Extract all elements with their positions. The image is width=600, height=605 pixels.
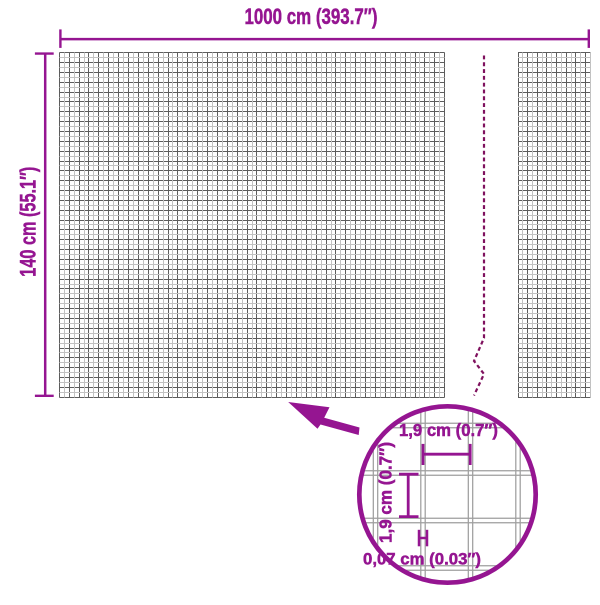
svg-text:1000 cm (393.7″): 1000 cm (393.7″) bbox=[245, 4, 378, 29]
svg-text:1,9 cm (0.7″): 1,9 cm (0.7″) bbox=[376, 442, 396, 543]
svg-text:140 cm (55.1″): 140 cm (55.1″) bbox=[16, 167, 41, 277]
svg-text:1,9 cm (0.7″): 1,9 cm (0.7″) bbox=[399, 420, 498, 440]
svg-text:0,07 cm (0.03″): 0,07 cm (0.03″) bbox=[363, 550, 481, 569]
